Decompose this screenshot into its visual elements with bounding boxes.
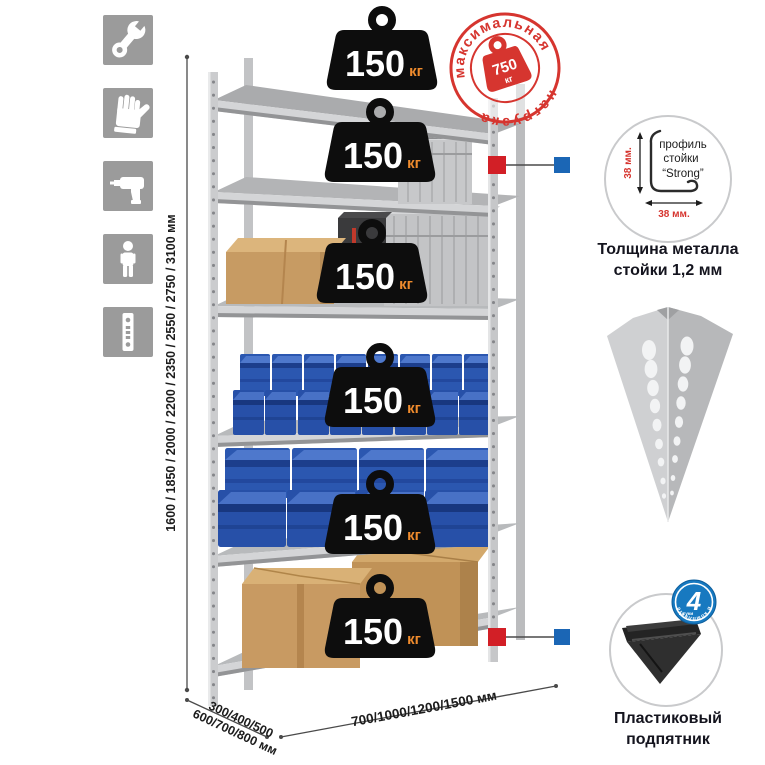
- red-marker-top: [488, 156, 506, 174]
- svg-text:150: 150: [335, 256, 395, 297]
- svg-text:150: 150: [343, 507, 403, 548]
- profile-caption-line1: Толщина металла: [578, 239, 758, 260]
- profile-callout-circle: 38 мм. 38 мм. профиль стойки “Strong”: [604, 115, 732, 243]
- foot-caption: Пластиковый подпятник: [578, 708, 758, 750]
- svg-text:“Strong”: “Strong”: [662, 168, 704, 180]
- profile-caption: Толщина металла стойки 1,2 мм: [578, 239, 758, 281]
- svg-text:кг: кг: [407, 631, 421, 648]
- foot-connector: [488, 628, 570, 646]
- profile-caption-line2: стойки 1,2 мм: [578, 260, 758, 281]
- wrench-tile: [103, 15, 153, 65]
- angle-post-image: [597, 290, 742, 530]
- foot-callout: 4 штуки в комплекте: [600, 574, 740, 719]
- svg-text:кг: кг: [409, 63, 423, 80]
- height-options-label: 1600 / 1850 / 2000 / 2200 / 2350 / 2550 …: [164, 163, 178, 583]
- wrench-icon: [103, 15, 153, 65]
- svg-text:кг: кг: [407, 400, 421, 417]
- foot-caption-line1: Пластиковый: [578, 708, 758, 729]
- svg-text:38 мм.: 38 мм.: [623, 147, 634, 179]
- shelf-load-badge-1: 150 кг: [327, 10, 437, 90]
- svg-text:150: 150: [345, 43, 405, 84]
- blue-marker-top: [554, 157, 570, 173]
- drill-icon: [103, 161, 153, 211]
- blue-marker-bottom: [554, 629, 570, 645]
- svg-text:кг: кг: [407, 155, 421, 172]
- red-marker-bottom: [488, 628, 506, 646]
- svg-text:кг: кг: [407, 527, 421, 544]
- svg-text:150: 150: [343, 611, 403, 652]
- svg-text:стойки: стойки: [663, 153, 698, 165]
- infographic-stage: 150 кг 150 кг 150 кг 150 кг 150 кг 150 к…: [0, 0, 765, 765]
- post-front-right: [488, 98, 498, 662]
- profile-drawing: 38 мм. 38 мм. профиль стойки “Strong”: [606, 117, 726, 237]
- upright-profile-tile: [103, 307, 153, 357]
- gloves-tile: [103, 88, 153, 138]
- svg-text:150: 150: [343, 380, 403, 421]
- height-dimension-line: [185, 55, 189, 692]
- svg-text:38 мм.: 38 мм.: [658, 209, 690, 220]
- horizontal-dim-arrow: [645, 200, 703, 206]
- post-front-left: [208, 72, 218, 706]
- svg-text:150: 150: [343, 135, 403, 176]
- person-icon: [103, 234, 153, 284]
- shelf-2: [214, 177, 520, 217]
- upright-profile-icon: [103, 307, 153, 357]
- svg-text:профиль: профиль: [659, 139, 707, 151]
- svg-text:кг: кг: [399, 276, 413, 293]
- gloves-icon: [103, 88, 153, 138]
- vertical-dim-arrow: [637, 132, 643, 194]
- post-back-right: [516, 84, 525, 640]
- foot-caption-line2: подпятник: [578, 729, 758, 750]
- drill-tile: [103, 161, 153, 211]
- included-badge: 4 штуки в комплекте: [672, 580, 716, 624]
- person-tile: [103, 234, 153, 284]
- profile-connector: [488, 156, 570, 174]
